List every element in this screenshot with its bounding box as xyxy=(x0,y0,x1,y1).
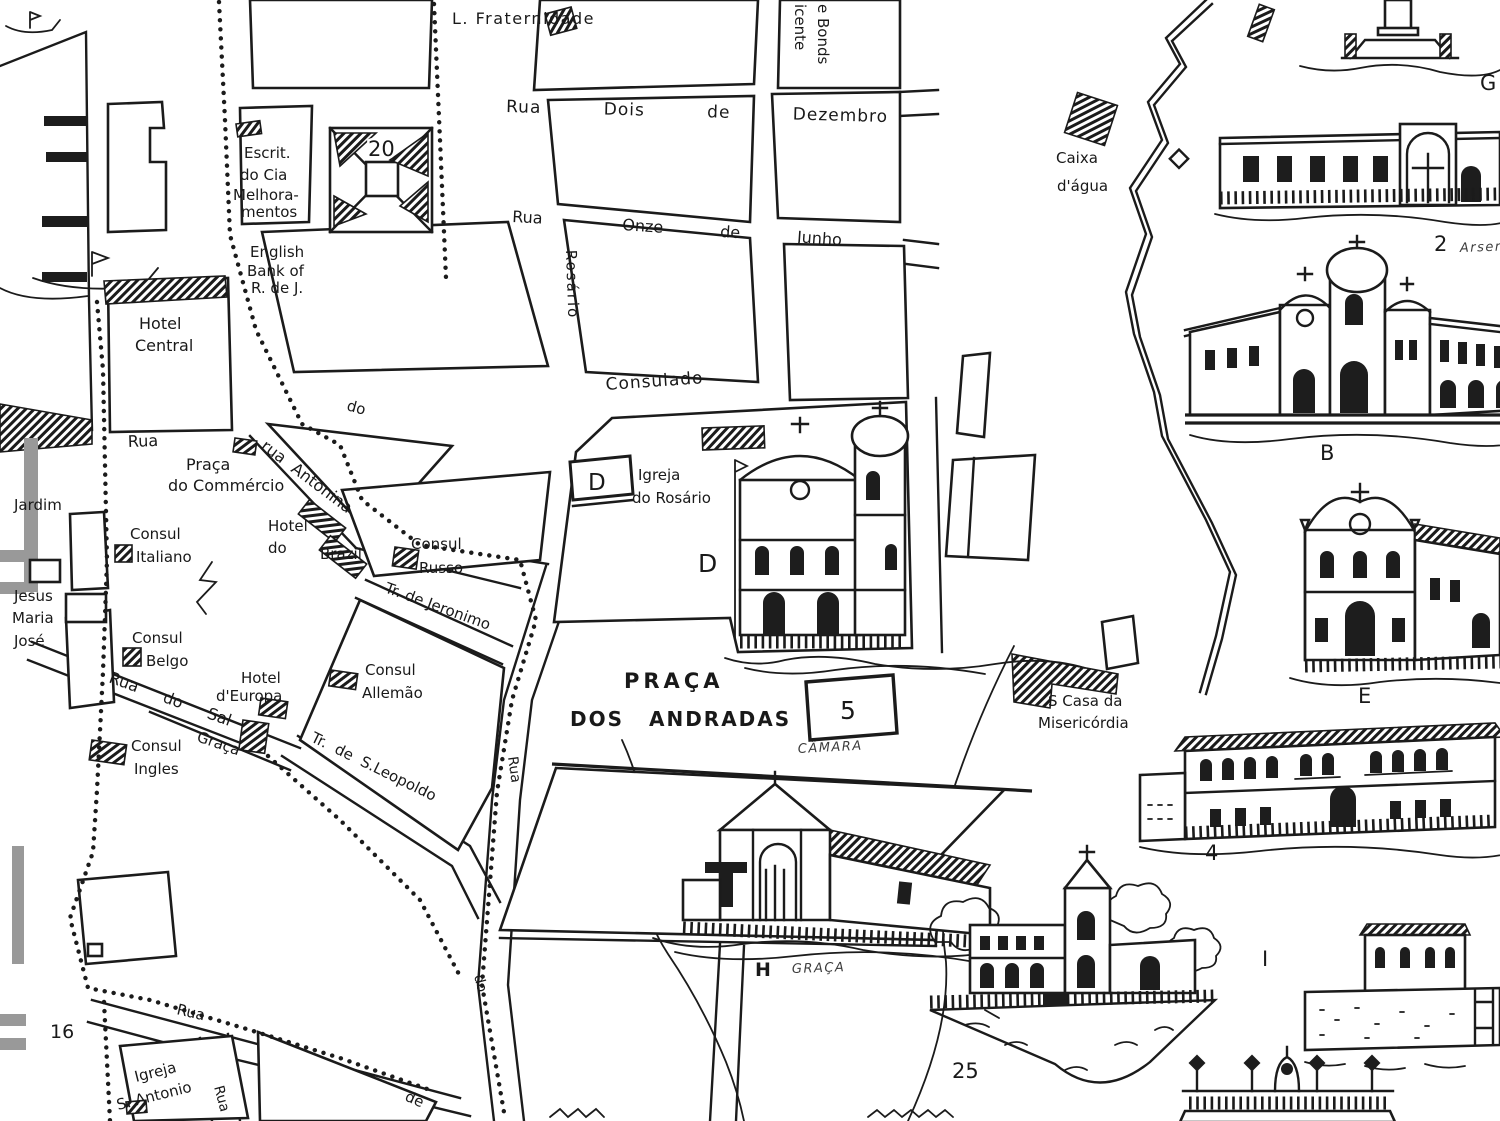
label-consul-italiano-1: Consul xyxy=(130,525,181,543)
monument-g-illustration xyxy=(1300,0,1500,76)
label-escritorio-2: do Cia xyxy=(240,166,287,184)
label-english-bank-3: R. de J. xyxy=(251,279,303,297)
marker-e: E xyxy=(1358,684,1371,708)
graca-corner-building xyxy=(239,720,269,753)
label-english-bank-2: Bank of xyxy=(247,262,305,280)
church-e-illustration xyxy=(1290,484,1500,688)
block xyxy=(564,220,758,382)
label-consul-allemao-1: Consul xyxy=(365,661,416,679)
marker-20: 20 xyxy=(368,137,395,161)
park-center xyxy=(366,162,398,196)
small-block xyxy=(1102,616,1138,669)
marker-16: 16 xyxy=(50,1021,74,1043)
street-label-do-upper: do xyxy=(345,396,368,418)
block-consul-allemao xyxy=(300,600,504,850)
arsenal-illustration xyxy=(1170,124,1500,225)
label-hotel-europa-2: d'Europa xyxy=(216,687,282,705)
block xyxy=(250,0,432,88)
consul-italiano-building xyxy=(115,545,132,562)
label-escritorio-4: mentos xyxy=(241,203,297,221)
label-hotel-central-2: Central xyxy=(135,336,193,355)
marker-4: 4 xyxy=(1205,841,1218,865)
label-praca-andradas-2: DOS ANDRADAS xyxy=(570,707,791,731)
block xyxy=(784,244,908,400)
label-escritorio-1: Escrit. xyxy=(244,144,291,162)
street-label-rua-commercio: Rua xyxy=(127,431,158,451)
label-jesus-2: Maria xyxy=(12,609,54,627)
label-consul-russo-1: Consul xyxy=(411,535,462,553)
commercio-building xyxy=(233,438,257,455)
small-building xyxy=(88,944,102,956)
small-building xyxy=(30,560,60,582)
label-igreja-rosario-2: do Rosário xyxy=(632,489,711,507)
label-jesus-3: José xyxy=(13,632,45,650)
marker-g: G xyxy=(1480,71,1496,95)
quay-line xyxy=(0,32,92,430)
label-caixa-2: d'água xyxy=(1057,177,1108,195)
v5-east-line xyxy=(936,398,942,652)
label-caixa-1: Caixa xyxy=(1056,149,1098,167)
label-camara: CÂMARA xyxy=(797,738,863,757)
church-b-illustration xyxy=(1185,236,1500,446)
grey-pier xyxy=(0,1014,26,1026)
block xyxy=(258,1032,436,1121)
label-consul-italiano-2: Italiano xyxy=(136,548,192,566)
consul-ingles-building xyxy=(89,740,126,765)
graca-south-street xyxy=(710,944,744,1121)
street-label-vicente: icente xyxy=(791,4,809,50)
label-escritorio-3: Melhora- xyxy=(233,186,299,204)
sawtooth-left xyxy=(550,1109,604,1117)
label-hotel-central-1: Hotel xyxy=(139,314,181,333)
street-label-do-vertical: do xyxy=(470,973,490,994)
marker-2: 2 xyxy=(1434,232,1447,256)
label-hotel-brazil-1: Hotel xyxy=(268,517,308,535)
marker-25: 25 xyxy=(952,1059,979,1083)
street-label-graca: Graça xyxy=(195,728,243,759)
label-hotel-brazil-2: do xyxy=(268,539,287,557)
escritorio-building xyxy=(236,121,262,137)
caixa-dagua-building xyxy=(1065,93,1118,146)
marker-d-box: D xyxy=(588,470,606,496)
label-consul-belgo-2: Belgo xyxy=(146,652,188,670)
arsenal-pole xyxy=(1248,4,1275,41)
label-hotel-europa-1: Hotel xyxy=(241,669,281,687)
label-santa-casa-2: Misericórdia xyxy=(1038,714,1129,732)
label-consul-russo-2: Russo xyxy=(419,559,463,577)
building-i-illustration xyxy=(1305,924,1500,1070)
pier xyxy=(42,216,88,227)
boat-icon-top xyxy=(6,12,60,32)
street-label-bonds: e Bonds xyxy=(814,4,832,64)
marker-b: B xyxy=(1320,441,1334,465)
label-praca-commercio-2: do Commércio xyxy=(168,476,284,495)
small-building xyxy=(66,594,106,622)
label-igreja-rosario-1: Igreja xyxy=(638,466,680,484)
label-consul-ingles-1: Consul xyxy=(131,737,182,755)
label-l-fraternidade: L. Fraternidade xyxy=(452,9,595,28)
rosario-block-building xyxy=(702,426,765,450)
block xyxy=(262,222,548,372)
street-label-rosario: Rosário xyxy=(562,250,582,320)
building-4-illustration xyxy=(1140,723,1500,858)
grey-pier-band xyxy=(12,846,24,964)
small-block xyxy=(946,455,1035,560)
block xyxy=(66,610,114,708)
hatched-quay xyxy=(0,404,92,452)
consul-allemao-building xyxy=(329,670,358,690)
label-english-bank-1: English xyxy=(250,243,304,261)
street-label-rua-bottom: Rua xyxy=(175,1000,207,1024)
tram-branch-south xyxy=(104,1002,110,1121)
marker-d-area: D xyxy=(698,549,717,578)
small-block xyxy=(957,353,990,437)
pier xyxy=(44,116,88,126)
pier xyxy=(42,272,87,282)
street-label-rua-vertical: Rua xyxy=(504,755,524,784)
label-jardim: Jardim xyxy=(13,496,62,514)
label-consul-belgo-1: Consul xyxy=(132,629,183,647)
label-jesus-1: Jesus xyxy=(13,587,53,605)
pier xyxy=(46,152,88,162)
marker-h: H xyxy=(755,959,771,981)
label-arsenal: Arsenal xyxy=(1459,239,1500,256)
label-santa-casa-1: S Casa da xyxy=(1048,692,1122,710)
grid-stubs xyxy=(900,90,938,268)
map-canvas: L. Fraternidade Rua Dois de Dezembro Rua… xyxy=(0,0,1500,1121)
label-praca-commercio-1: Praça xyxy=(186,455,230,474)
label-hotel-brazil-3: Brazil xyxy=(320,545,362,563)
grey-pier xyxy=(0,1038,26,1050)
street-label-onze-rua: Rua xyxy=(512,207,543,228)
fountain-illustration xyxy=(1180,1047,1395,1121)
marker-i: I xyxy=(1262,947,1268,971)
label-consul-allemao-2: Allemão xyxy=(362,684,423,702)
label-praca-andradas-1: PRAÇA xyxy=(624,669,723,693)
consul-belgo-building xyxy=(123,648,141,666)
grey-pier xyxy=(0,550,26,562)
marker-5: 5 xyxy=(840,696,856,725)
block-slim xyxy=(70,512,108,590)
block-stepped xyxy=(108,102,166,232)
label-consul-ingles-2: Ingles xyxy=(134,760,179,778)
city-map: L. Fraternidade Rua Dois de Dezembro Rua… xyxy=(0,0,1500,1121)
label-graca-hill: GRAÇA xyxy=(792,960,846,977)
zigzag-line xyxy=(197,562,216,614)
